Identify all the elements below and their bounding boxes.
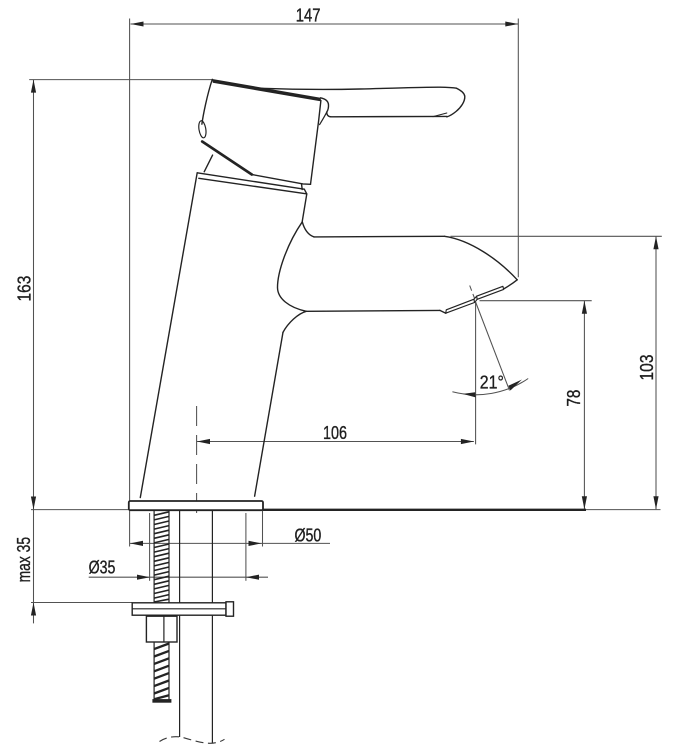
svg-text:147: 147: [296, 4, 321, 25]
svg-text:163: 163: [14, 276, 35, 302]
svg-text:Ø35: Ø35: [89, 556, 116, 577]
svg-text:103: 103: [636, 355, 657, 381]
svg-text:106: 106: [323, 422, 347, 443]
svg-text:21°: 21°: [480, 372, 504, 393]
svg-text:78: 78: [563, 390, 584, 407]
svg-text:Ø50: Ø50: [295, 524, 322, 545]
svg-text:max 35: max 35: [13, 537, 34, 583]
